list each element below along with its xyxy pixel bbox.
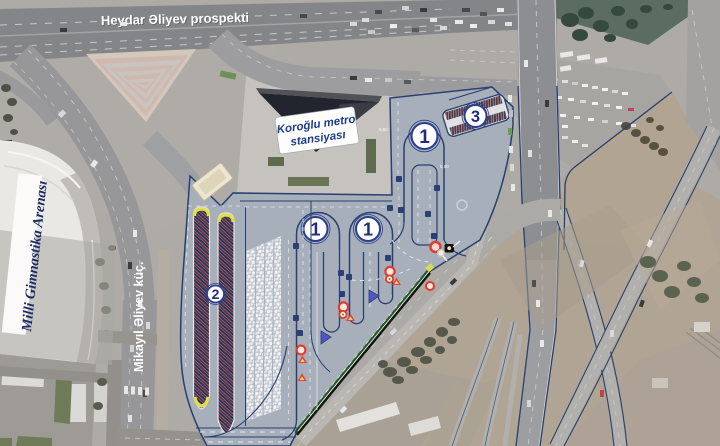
svg-text:1: 1 — [419, 127, 430, 148]
svg-text:6,60: 6,60 — [379, 127, 388, 132]
svg-text:3: 3 — [471, 108, 480, 126]
svg-text:1: 1 — [310, 220, 320, 240]
svg-text:2: 2 — [212, 286, 220, 302]
svg-text:Mikayıl Əliyev küç.: Mikayıl Əliyev küç. — [132, 261, 146, 372]
svg-text:5,00: 5,00 — [440, 164, 449, 169]
svg-text:1: 1 — [363, 220, 373, 240]
